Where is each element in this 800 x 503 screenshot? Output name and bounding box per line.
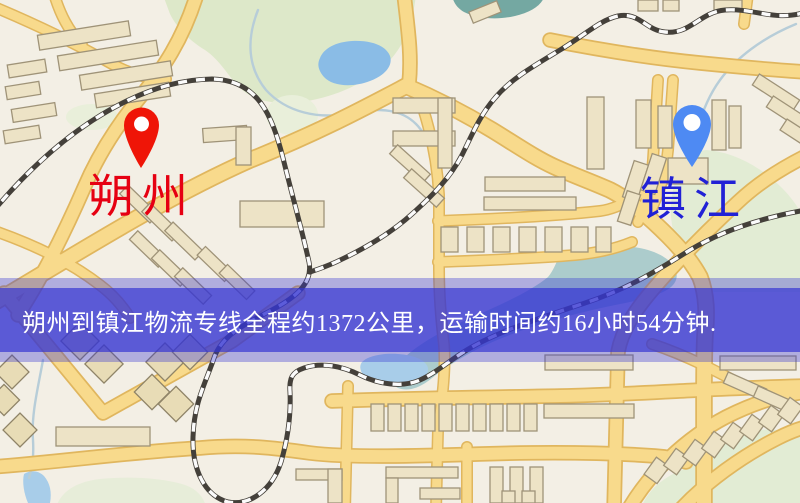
origin-pin-icon [121,105,161,168]
banner-top-fade [0,278,800,288]
destination-city-label: 镇江 [640,177,748,223]
destination-pin-icon [671,103,713,167]
banner-bottom-fade [0,352,800,362]
logistics-route-map: 朔州 镇江 朔州到镇江物流专线全程约1372公里，运输时间约16小时54分钟. [0,0,800,503]
origin-city-label: 朔州 [88,174,196,220]
route-info-text: 朔州到镇江物流专线全程约1372公里，运输时间约16小时54分钟. [22,303,717,338]
route-info-banner: 朔州到镇江物流专线全程约1372公里，运输时间约16小时54分钟. [0,288,800,352]
map-image [0,0,800,503]
